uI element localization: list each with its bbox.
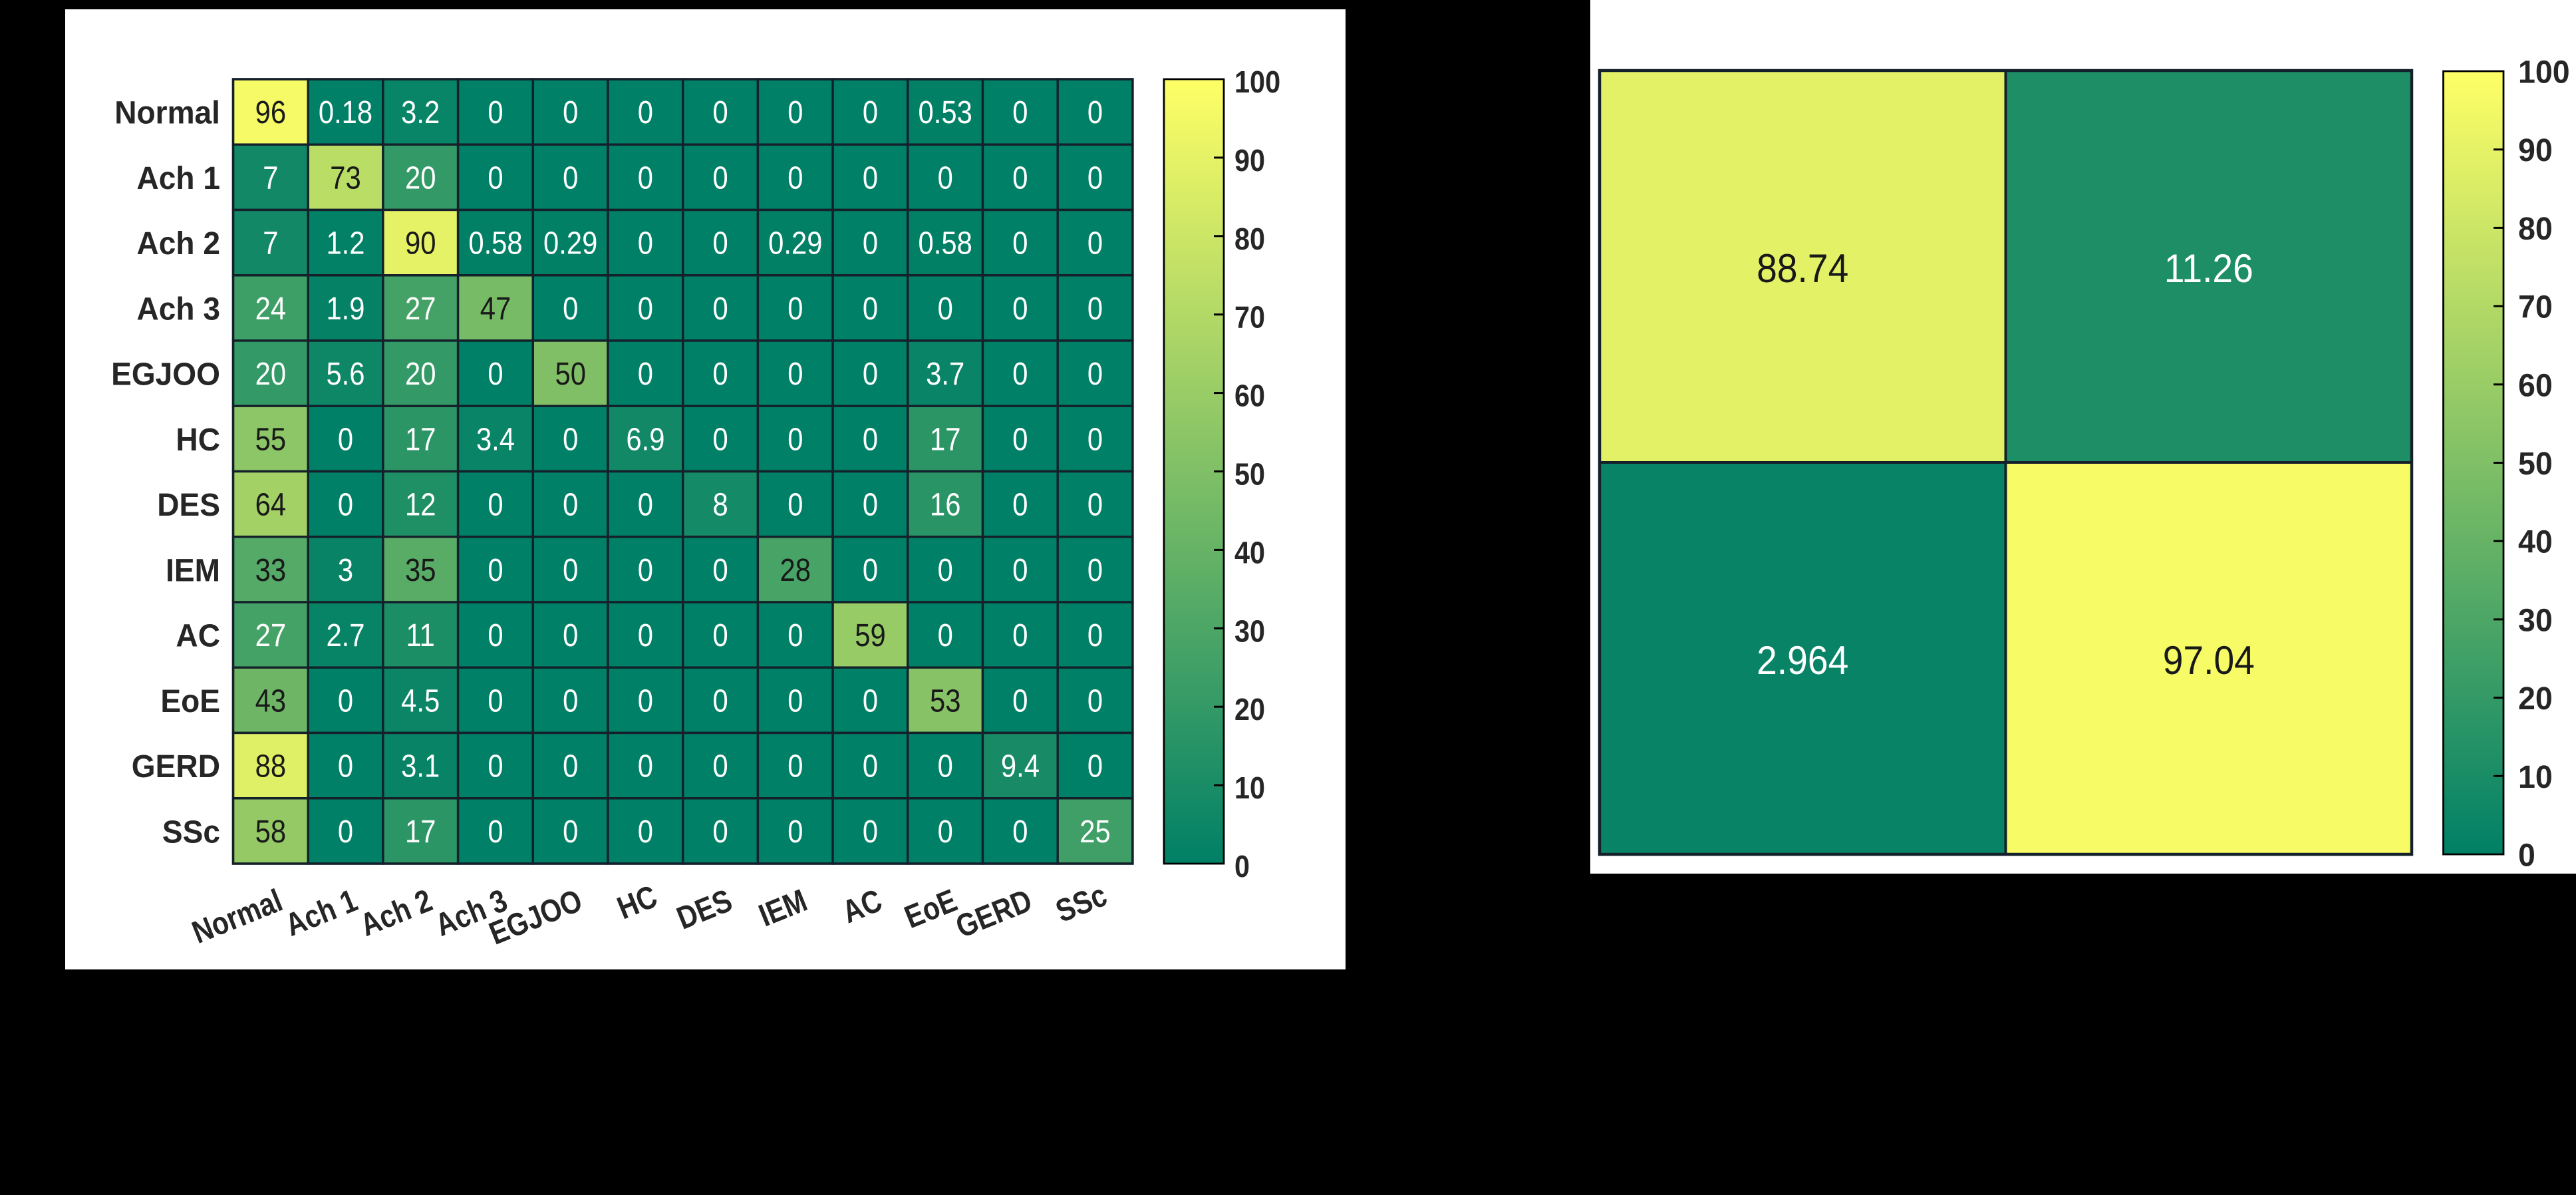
svg-text:88.74: 88.74 bbox=[1757, 246, 1848, 291]
svg-text:47: 47 bbox=[480, 291, 511, 327]
svg-text:0: 0 bbox=[787, 291, 803, 327]
svg-text:0: 0 bbox=[1087, 95, 1103, 130]
svg-text:0: 0 bbox=[1087, 422, 1103, 457]
svg-text:60: 60 bbox=[2518, 368, 2553, 403]
svg-text:80: 80 bbox=[2518, 212, 2553, 247]
svg-text:0: 0 bbox=[713, 357, 728, 392]
svg-text:0: 0 bbox=[338, 683, 353, 719]
svg-text:9.4: 9.4 bbox=[1001, 749, 1040, 784]
svg-text:0: 0 bbox=[1012, 683, 1028, 719]
svg-text:0: 0 bbox=[863, 95, 878, 130]
svg-text:0: 0 bbox=[713, 422, 728, 457]
svg-text:0: 0 bbox=[1012, 95, 1028, 130]
svg-text:20: 20 bbox=[405, 357, 436, 392]
svg-text:0: 0 bbox=[938, 618, 953, 653]
svg-text:1.2: 1.2 bbox=[326, 226, 364, 261]
svg-text:0: 0 bbox=[713, 814, 728, 850]
svg-text:0: 0 bbox=[563, 95, 578, 130]
svg-text:0: 0 bbox=[563, 749, 578, 784]
svg-text:50: 50 bbox=[2518, 446, 2553, 482]
svg-text:25: 25 bbox=[1079, 814, 1111, 850]
svg-text:0: 0 bbox=[563, 814, 578, 850]
svg-text:2.7: 2.7 bbox=[326, 618, 364, 653]
svg-text:0: 0 bbox=[1087, 618, 1103, 653]
svg-text:0: 0 bbox=[563, 488, 578, 523]
svg-text:24: 24 bbox=[255, 291, 287, 327]
svg-text:3.1: 3.1 bbox=[401, 749, 440, 784]
svg-text:0: 0 bbox=[488, 357, 503, 392]
svg-text:16: 16 bbox=[930, 488, 961, 523]
svg-text:5.6: 5.6 bbox=[326, 357, 364, 392]
svg-text:0: 0 bbox=[787, 160, 803, 196]
svg-text:40: 40 bbox=[1234, 535, 1265, 570]
svg-text:7: 7 bbox=[263, 160, 278, 196]
svg-text:0: 0 bbox=[488, 95, 503, 130]
svg-text:0: 0 bbox=[1012, 618, 1028, 653]
svg-text:17: 17 bbox=[405, 814, 436, 850]
svg-text:0: 0 bbox=[787, 749, 803, 784]
svg-text:0: 0 bbox=[338, 422, 353, 457]
svg-text:0: 0 bbox=[638, 226, 653, 261]
svg-text:0: 0 bbox=[2518, 838, 2535, 874]
svg-text:0: 0 bbox=[638, 618, 653, 653]
svg-text:3.2: 3.2 bbox=[401, 95, 440, 130]
svg-text:12: 12 bbox=[405, 488, 436, 523]
svg-text:0.53: 0.53 bbox=[919, 95, 972, 130]
svg-text:90: 90 bbox=[1234, 143, 1265, 178]
svg-text:0: 0 bbox=[713, 291, 728, 327]
svg-text:0: 0 bbox=[863, 749, 878, 784]
svg-text:0: 0 bbox=[1012, 488, 1028, 523]
svg-text:90: 90 bbox=[405, 226, 436, 261]
svg-text:0: 0 bbox=[1087, 683, 1103, 719]
svg-text:AC: AC bbox=[176, 619, 220, 654]
svg-text:0: 0 bbox=[638, 357, 653, 392]
svg-text:EoE: EoE bbox=[160, 684, 220, 719]
svg-text:0: 0 bbox=[1012, 357, 1028, 392]
svg-text:0: 0 bbox=[787, 814, 803, 850]
svg-text:0: 0 bbox=[787, 422, 803, 457]
svg-text:73: 73 bbox=[330, 160, 361, 196]
svg-text:0: 0 bbox=[338, 749, 353, 784]
svg-text:0: 0 bbox=[1012, 422, 1028, 457]
svg-text:0: 0 bbox=[938, 291, 953, 327]
svg-text:11: 11 bbox=[406, 618, 435, 653]
svg-text:0: 0 bbox=[638, 488, 653, 523]
svg-text:0: 0 bbox=[1087, 291, 1103, 327]
svg-text:DES: DES bbox=[157, 488, 220, 523]
svg-text:0: 0 bbox=[563, 291, 578, 327]
svg-text:0: 0 bbox=[863, 422, 878, 457]
svg-text:0: 0 bbox=[713, 226, 728, 261]
svg-text:0: 0 bbox=[638, 683, 653, 719]
svg-text:50: 50 bbox=[555, 357, 586, 392]
svg-text:4.5: 4.5 bbox=[401, 683, 440, 719]
svg-text:17: 17 bbox=[930, 422, 961, 457]
svg-text:0: 0 bbox=[863, 160, 878, 196]
svg-text:0: 0 bbox=[1012, 553, 1028, 588]
svg-text:20: 20 bbox=[255, 357, 287, 392]
svg-text:0: 0 bbox=[638, 95, 653, 130]
svg-text:58: 58 bbox=[255, 814, 287, 850]
svg-text:0: 0 bbox=[638, 814, 653, 850]
svg-text:10: 10 bbox=[2518, 760, 2553, 795]
svg-text:Ach 3: Ach 3 bbox=[137, 291, 221, 327]
svg-text:0: 0 bbox=[787, 683, 803, 719]
svg-text:64: 64 bbox=[255, 488, 287, 523]
svg-text:8: 8 bbox=[713, 488, 728, 523]
svg-text:0: 0 bbox=[938, 160, 953, 196]
svg-text:0: 0 bbox=[563, 422, 578, 457]
svg-text:Normal: Normal bbox=[114, 96, 220, 131]
svg-text:90: 90 bbox=[2518, 133, 2553, 168]
svg-text:IEM: IEM bbox=[166, 553, 220, 588]
svg-text:30: 30 bbox=[2518, 603, 2553, 638]
svg-text:0.58: 0.58 bbox=[919, 226, 972, 261]
svg-text:Ach 2: Ach 2 bbox=[137, 226, 221, 261]
svg-text:0: 0 bbox=[938, 553, 953, 588]
svg-text:0: 0 bbox=[1012, 226, 1028, 261]
svg-text:0: 0 bbox=[1087, 160, 1103, 196]
svg-text:0: 0 bbox=[488, 553, 503, 588]
svg-text:0: 0 bbox=[787, 488, 803, 523]
svg-text:0: 0 bbox=[563, 553, 578, 588]
svg-text:HC: HC bbox=[176, 423, 220, 458]
svg-text:10: 10 bbox=[1234, 770, 1265, 805]
svg-text:0.29: 0.29 bbox=[768, 226, 822, 261]
svg-text:0.58: 0.58 bbox=[468, 226, 522, 261]
svg-text:43: 43 bbox=[255, 683, 287, 719]
svg-text:0: 0 bbox=[787, 618, 803, 653]
svg-text:0: 0 bbox=[488, 160, 503, 196]
svg-text:Ach 1: Ach 1 bbox=[137, 161, 221, 196]
svg-text:60: 60 bbox=[1234, 379, 1265, 413]
svg-text:2.964: 2.964 bbox=[1757, 638, 1848, 683]
svg-text:GERD: GERD bbox=[132, 749, 220, 784]
svg-text:3.7: 3.7 bbox=[926, 357, 964, 392]
svg-text:59: 59 bbox=[855, 618, 886, 653]
svg-text:88: 88 bbox=[255, 749, 287, 784]
svg-text:0: 0 bbox=[1087, 488, 1103, 523]
svg-text:0: 0 bbox=[713, 749, 728, 784]
svg-text:0: 0 bbox=[938, 814, 953, 850]
svg-text:0: 0 bbox=[338, 814, 353, 850]
svg-text:0: 0 bbox=[787, 357, 803, 392]
svg-text:0: 0 bbox=[638, 749, 653, 784]
svg-text:0: 0 bbox=[1087, 553, 1103, 588]
svg-text:80: 80 bbox=[1234, 222, 1265, 256]
svg-text:0: 0 bbox=[638, 160, 653, 196]
svg-text:0.29: 0.29 bbox=[543, 226, 597, 261]
svg-text:0: 0 bbox=[863, 553, 878, 588]
svg-text:SSc: SSc bbox=[162, 814, 220, 850]
svg-text:50: 50 bbox=[1234, 457, 1265, 492]
svg-text:100: 100 bbox=[2518, 55, 2570, 90]
svg-text:0: 0 bbox=[863, 814, 878, 850]
svg-text:100: 100 bbox=[1234, 65, 1280, 99]
svg-text:0: 0 bbox=[1087, 357, 1103, 392]
svg-text:20: 20 bbox=[405, 160, 436, 196]
svg-text:0: 0 bbox=[1012, 291, 1028, 327]
svg-text:0: 0 bbox=[488, 488, 503, 523]
svg-text:33: 33 bbox=[255, 553, 287, 588]
svg-text:30: 30 bbox=[1234, 613, 1265, 648]
svg-text:11.26: 11.26 bbox=[2164, 246, 2253, 291]
svg-text:0: 0 bbox=[1012, 814, 1028, 850]
svg-text:7: 7 bbox=[263, 226, 278, 261]
svg-text:96: 96 bbox=[255, 95, 287, 130]
svg-text:20: 20 bbox=[2518, 681, 2553, 717]
svg-text:27: 27 bbox=[255, 618, 287, 653]
svg-text:0: 0 bbox=[488, 618, 503, 653]
svg-text:0: 0 bbox=[1087, 749, 1103, 784]
svg-text:0: 0 bbox=[713, 683, 728, 719]
svg-text:3.4: 3.4 bbox=[476, 422, 515, 457]
svg-text:0: 0 bbox=[713, 160, 728, 196]
svg-text:0: 0 bbox=[863, 357, 878, 392]
svg-text:40: 40 bbox=[2518, 525, 2553, 560]
svg-text:6.9: 6.9 bbox=[626, 422, 664, 457]
svg-text:0: 0 bbox=[1234, 849, 1250, 884]
svg-text:97.04: 97.04 bbox=[2163, 638, 2255, 683]
svg-text:17: 17 bbox=[405, 422, 436, 457]
svg-text:0: 0 bbox=[938, 749, 953, 784]
svg-text:35: 35 bbox=[405, 553, 436, 588]
svg-text:0: 0 bbox=[563, 683, 578, 719]
svg-text:0: 0 bbox=[338, 488, 353, 523]
svg-text:EGJOO: EGJOO bbox=[111, 357, 220, 393]
svg-text:0: 0 bbox=[713, 553, 728, 588]
svg-text:0: 0 bbox=[563, 618, 578, 653]
svg-text:0: 0 bbox=[488, 749, 503, 784]
svg-text:0: 0 bbox=[1087, 226, 1103, 261]
svg-text:0: 0 bbox=[1012, 160, 1028, 196]
svg-text:0: 0 bbox=[488, 683, 503, 719]
svg-text:0: 0 bbox=[488, 814, 503, 850]
svg-text:0: 0 bbox=[563, 160, 578, 196]
svg-text:0: 0 bbox=[863, 291, 878, 327]
svg-text:55: 55 bbox=[255, 422, 287, 457]
svg-text:0: 0 bbox=[863, 226, 878, 261]
svg-text:1.9: 1.9 bbox=[326, 291, 364, 327]
svg-text:3: 3 bbox=[338, 553, 353, 588]
svg-text:27: 27 bbox=[405, 291, 436, 327]
svg-text:70: 70 bbox=[1234, 300, 1265, 335]
svg-text:20: 20 bbox=[1234, 692, 1265, 727]
svg-text:28: 28 bbox=[780, 553, 811, 588]
svg-text:53: 53 bbox=[930, 683, 961, 719]
svg-text:70: 70 bbox=[2518, 290, 2553, 325]
svg-text:0: 0 bbox=[638, 291, 653, 327]
svg-text:0: 0 bbox=[787, 95, 803, 130]
svg-text:0: 0 bbox=[863, 683, 878, 719]
svg-text:0: 0 bbox=[713, 95, 728, 130]
svg-text:0: 0 bbox=[638, 553, 653, 588]
svg-text:0: 0 bbox=[863, 488, 878, 523]
svg-text:0.18: 0.18 bbox=[319, 95, 372, 130]
svg-text:0: 0 bbox=[713, 618, 728, 653]
